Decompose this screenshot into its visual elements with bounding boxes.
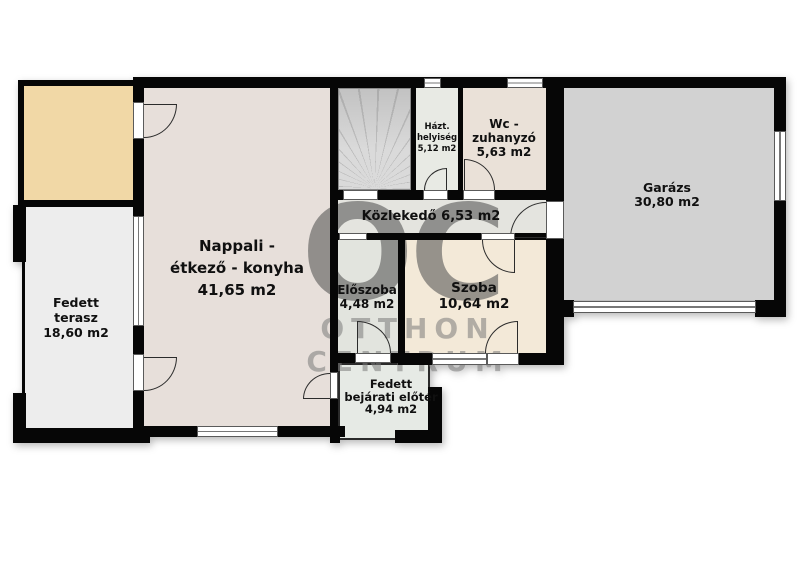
door-threshold-garage <box>546 201 564 239</box>
wall-eloszoba-szoba <box>398 233 405 365</box>
opening-eloszoba <box>339 233 367 240</box>
door-threshold-szoba-south <box>487 353 519 365</box>
door-threshold-wc <box>463 190 495 200</box>
wall-terrace-top <box>18 200 137 207</box>
room-area: 5,12 m2 <box>417 144 457 155</box>
room-label-nappali: Nappali - étkező - konyha 41,65 m2 <box>170 236 304 301</box>
wall-garage-corner-right <box>755 300 786 317</box>
wall-top <box>133 77 786 88</box>
garage-vehicle-door <box>573 301 756 313</box>
wall-porch-bottom <box>395 430 442 443</box>
window-szoba-bottom <box>432 353 487 365</box>
room-area: 18,60 m2 <box>43 325 109 340</box>
room-area: 10,64 m2 <box>439 297 510 313</box>
door-threshold-terrace <box>133 354 144 391</box>
stairs <box>338 88 411 190</box>
opening-stairs <box>343 190 378 200</box>
room-label-hazt: Házt. helyiség 5,12 m2 <box>417 122 457 155</box>
window-hazt-top <box>424 78 441 88</box>
room-label-garazs: Garázs 30,80 m2 <box>634 181 700 210</box>
floorplan-canvas: OC OTTHON CENTRUM <box>0 0 800 565</box>
window-garage-right <box>774 131 786 201</box>
room-name: Előszoba <box>337 283 397 297</box>
room-label-terasz: Fedett terasz 18,60 m2 <box>43 295 109 340</box>
wall-garage-corner-left <box>552 300 574 317</box>
wall-terrace-bottom <box>26 428 150 443</box>
room-name: Fedett terasz <box>43 295 109 325</box>
window-nappali-bottom <box>197 426 278 437</box>
room-name: Garázs <box>634 181 700 195</box>
room-label-szoba: Szoba 10,64 m2 <box>439 281 510 312</box>
door-threshold-tan <box>133 102 144 139</box>
wall-tan-left <box>18 80 24 207</box>
room-name: Wc - zuhanyzó <box>472 117 536 145</box>
room-name: Közlekedő <box>362 209 437 224</box>
room-name: Fedett bejárati előtér <box>344 378 437 403</box>
watermark-line1: OTTHON <box>320 315 495 343</box>
wall-tan-top <box>18 80 137 86</box>
room-label-wc: Wc - zuhanyzó 5,63 m2 <box>472 117 536 159</box>
room-tan-floor <box>24 86 133 200</box>
door-threshold-entry <box>355 353 391 363</box>
wall-hazt-wc <box>458 88 463 190</box>
wall-stairs-hazt <box>411 88 416 190</box>
room-area: 30,80 m2 <box>634 195 700 209</box>
door-threshold-porch <box>330 372 338 399</box>
room-area: 41,65 m2 <box>170 280 304 302</box>
room-name: Szoba <box>439 281 510 297</box>
room-area: 5,63 m2 <box>472 145 536 159</box>
door-threshold-hazt <box>423 190 448 200</box>
window-wc-top <box>507 78 543 88</box>
room-area: 4,94 m2 <box>344 403 437 416</box>
room-label-bejarati: Fedett bejárati előtér 4,94 m2 <box>344 378 437 416</box>
room-name: Nappali - étkező - konyha <box>170 236 304 280</box>
wall-terrace-post-top <box>13 205 26 262</box>
room-label-eloszoba: Előszoba 4,48 m2 <box>337 283 397 311</box>
room-area: 4,48 m2 <box>337 297 397 311</box>
door-threshold-szoba <box>481 233 515 240</box>
room-area: 6,53 m2 <box>441 209 500 224</box>
room-name: Házt. helyiség <box>417 122 457 144</box>
window-nappali-terrace <box>133 216 144 326</box>
wall-terrace-post-bottom <box>13 393 26 443</box>
floorplan: OC OTTHON CENTRUM <box>0 0 800 565</box>
room-label-kozlekedo: Közlekedő 6,53 m2 <box>362 209 501 224</box>
wall-porch-corner <box>330 430 340 443</box>
